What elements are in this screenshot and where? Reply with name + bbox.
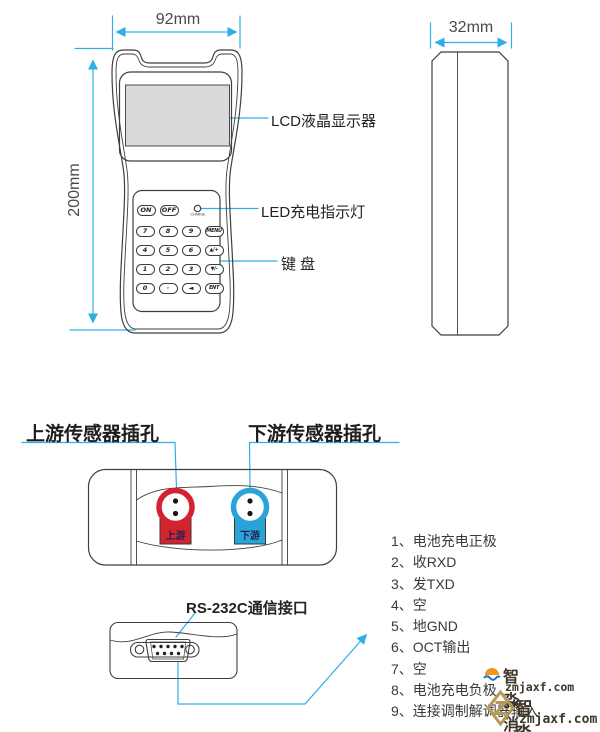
jack-pin-hole (247, 498, 252, 503)
key-backspace: ◄ (182, 283, 201, 294)
db9-screw-hole (135, 645, 144, 654)
lcd-screen (126, 85, 230, 146)
rs232-contour-line (110, 632, 237, 642)
fire-protection-logo-icon (482, 665, 502, 685)
rs232-callout: RS-232C通信接口 (186, 597, 308, 618)
jack-pin-hole (247, 511, 252, 516)
downstream-tag: 下游 (235, 527, 266, 542)
dimension-200mm: 200mm (66, 160, 82, 220)
key-4: 4 (136, 245, 155, 256)
top-view-outline (89, 470, 337, 566)
downstream-leader-line (250, 443, 400, 490)
downstream-jack (234, 491, 267, 524)
pin-item: 5、地GND (391, 616, 539, 637)
key-8: 8 (159, 226, 178, 237)
upstream-leader-line (22, 443, 177, 490)
pin-item: 3、发TXD (391, 574, 539, 595)
keypad-callout: 键 盘 (281, 253, 315, 274)
key-on: ON (137, 205, 156, 216)
key-off: OFF (160, 205, 179, 216)
key-ent: ENT (205, 283, 224, 294)
key-2: 2 (159, 264, 178, 275)
diamond-logo-icon (485, 689, 516, 727)
key-down-minus: ▼/- (205, 264, 224, 275)
rs232-end-view (110, 623, 237, 679)
db9-screw-hole (186, 645, 195, 654)
key-up-plus: ▲/+ (205, 245, 224, 256)
side-view-device (432, 52, 508, 335)
dimension-32mm: 32mm (444, 19, 498, 37)
upstream-jack (159, 491, 192, 524)
lcd-callout: LCD液晶显示器 (271, 110, 376, 131)
pin-item: 4、空 (391, 595, 539, 616)
downstream-callout: 下游传感器插孔 (248, 419, 381, 446)
key-7: 7 (136, 226, 155, 237)
charge-label: CHARGE (189, 213, 206, 216)
upstream-tag: 上游 (160, 527, 191, 542)
key-dot: · (159, 283, 178, 294)
watermark-site: zmjaxf.com (519, 712, 597, 727)
key-3: 3 (182, 264, 201, 275)
pin-item: 1、电池充电正极 (391, 531, 539, 552)
manual-page: 92mm 200mm 32mm LCD液晶显示器 LED充电指示灯 键 盘 ON… (0, 0, 600, 732)
side-view-outline (432, 52, 508, 335)
jack-pin-hole (173, 511, 178, 516)
led-charge-indicator (194, 205, 200, 211)
key-menu: MENU (205, 226, 224, 237)
key-9: 9 (182, 226, 201, 237)
pinout-arrow-line (178, 635, 366, 704)
upstream-callout: 上游传感器插孔 (26, 419, 159, 446)
led-callout: LED充电指示灯 (261, 201, 365, 222)
key-6: 6 (182, 245, 201, 256)
pin-item: 6、OCT输出 (391, 637, 539, 658)
key-1: 1 (136, 264, 155, 275)
jack-pin-hole (173, 498, 178, 503)
pin-item: 2、收RXD (391, 552, 539, 573)
db9-pins (152, 645, 183, 655)
dimension-92mm: 92mm (150, 11, 206, 29)
key-0: 0 (136, 283, 155, 294)
top-view-device (89, 470, 337, 566)
key-5: 5 (159, 245, 178, 256)
rs232-device-outline (110, 623, 237, 679)
